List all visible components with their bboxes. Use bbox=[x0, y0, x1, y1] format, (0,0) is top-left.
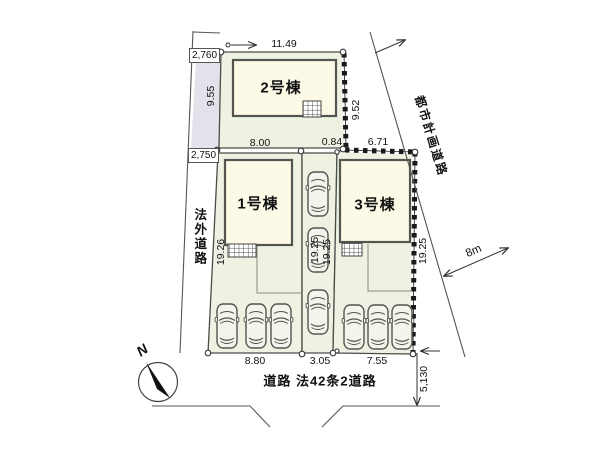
dim-left-road-width-top: 2,760 bbox=[189, 48, 220, 63]
dim-south-road-width: 5,130 bbox=[419, 366, 430, 392]
frontage-leader-arrow bbox=[226, 43, 256, 47]
dim-lot2-depth-left: 9.55 bbox=[206, 86, 217, 106]
left-road-label: 法外道路 bbox=[193, 208, 206, 266]
south-road-edge bbox=[152, 406, 440, 427]
compass bbox=[139, 362, 178, 402]
dim-driveway-depth-left: 19.25 bbox=[310, 237, 321, 263]
dim-left-road-width-bottom: 2,750 bbox=[188, 148, 219, 163]
dim-lot1-depth: 19.26 bbox=[216, 239, 227, 265]
dim-driveway-bottom: 3.05 bbox=[310, 356, 330, 367]
dim-lot3-depth: 19.25 bbox=[418, 238, 429, 264]
dim-lot2-depth-right: 9.52 bbox=[351, 100, 362, 120]
site-plan-page: 11.49 2,760 9.55 2号棟 9.52 2,750 8.00 0.8… bbox=[0, 0, 600, 461]
building-3-label: 3号棟 bbox=[354, 198, 395, 213]
site-plan-drawing bbox=[0, 0, 600, 461]
dim-lot3-frontage: 6.71 bbox=[368, 137, 388, 148]
building-1-label: 1号棟 bbox=[237, 197, 278, 212]
south-road-label: 道路 法42条2道路 bbox=[263, 375, 376, 388]
dim-lot1-bottom: 8.80 bbox=[245, 356, 265, 367]
dim-driveway-depth-right: 19.25 bbox=[322, 239, 333, 265]
dim-lot1-frontage: 8.00 bbox=[250, 138, 270, 149]
dim-lot2-frontage: 11.49 bbox=[271, 39, 297, 50]
dim-lot3-top-offset: 0.84 bbox=[322, 137, 342, 148]
dim-lot3-bottom: 7.55 bbox=[367, 356, 387, 367]
building-2-label: 2号棟 bbox=[260, 81, 301, 96]
